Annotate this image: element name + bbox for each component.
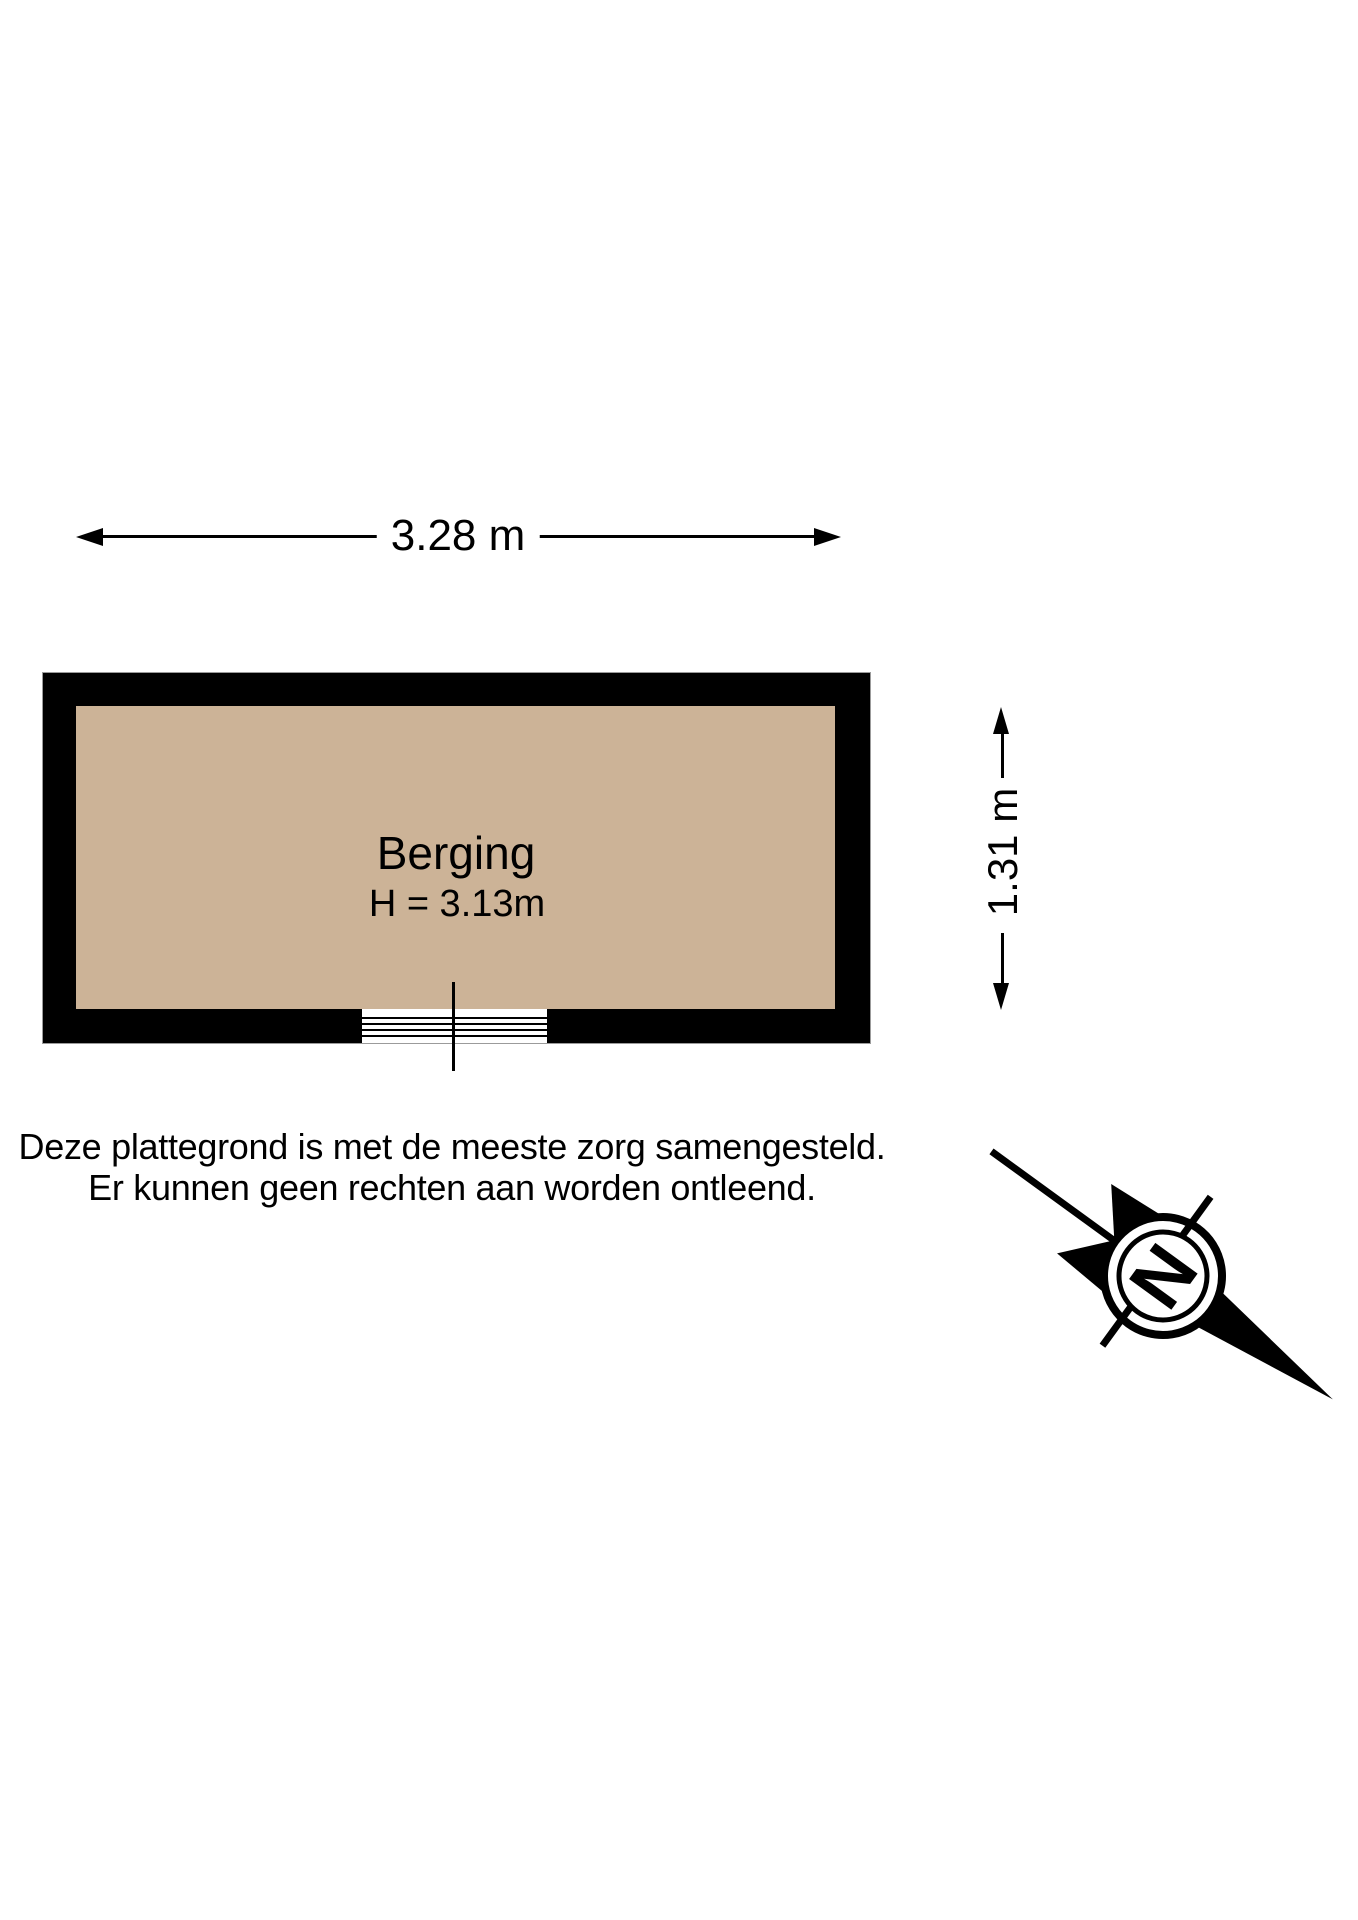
room-ceiling-height-label: H = 3.13m xyxy=(369,884,545,924)
depth-dimension-arrowhead-top xyxy=(993,707,1009,734)
room-name-label: Berging xyxy=(377,830,536,876)
width-dimension-label: 3.28 m xyxy=(377,511,540,561)
door-center-line xyxy=(452,982,455,1071)
disclaimer-text: Deze plattegrond is met de meeste zorg s… xyxy=(19,1126,886,1208)
depth-dimension-line-top xyxy=(1001,732,1004,778)
compass-tail-line xyxy=(991,1151,1118,1243)
width-dimension-arrowhead-right xyxy=(814,528,841,546)
depth-dimension-arrowhead-bottom xyxy=(993,983,1009,1010)
north-compass-icon: N xyxy=(963,1076,1358,1476)
floorplan-page: 3.28 m Berging H = 3.13m 1.31 m Deze pla… xyxy=(0,0,1358,1920)
depth-dimension-line-bottom xyxy=(1001,933,1004,983)
disclaimer-line-1: Deze plattegrond is met de meeste zorg s… xyxy=(19,1126,886,1167)
depth-dimension-label: 1.31 m xyxy=(980,788,1026,916)
disclaimer-line-2: Er kunnen geen rechten aan worden ontlee… xyxy=(19,1167,886,1208)
